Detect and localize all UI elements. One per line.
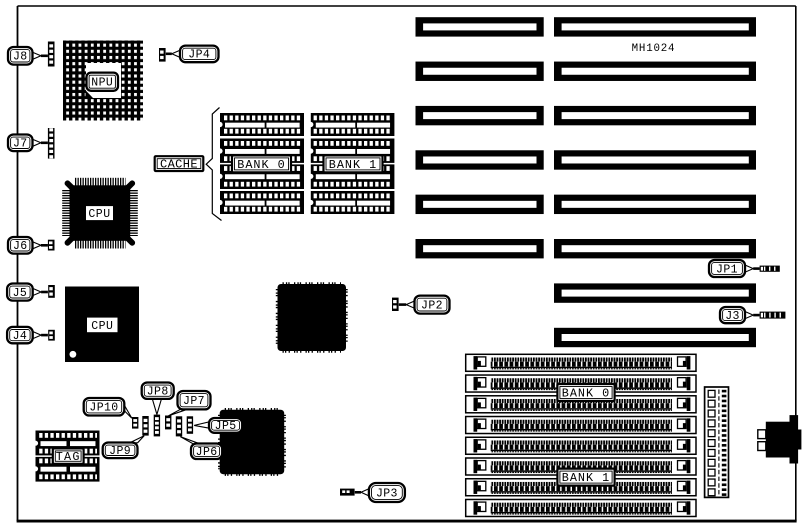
svg-text:NPU: NPU <box>91 77 113 90</box>
svg-text:BANK 0: BANK 0 <box>562 386 610 400</box>
svg-text:JP1: JP1 <box>716 263 738 276</box>
svg-text:BANK 0: BANK 0 <box>237 158 285 172</box>
svg-text:JP3: JP3 <box>376 487 398 500</box>
svg-text:CPU: CPU <box>91 320 113 333</box>
svg-text:JP4: JP4 <box>188 49 210 62</box>
svg-text:CPU: CPU <box>88 208 110 221</box>
svg-text:J6: J6 <box>13 240 28 253</box>
svg-text:JP6: JP6 <box>196 446 218 459</box>
svg-text:J3: J3 <box>725 310 740 323</box>
svg-text:JP2: JP2 <box>421 299 443 312</box>
svg-text:TAG: TAG <box>56 450 81 464</box>
svg-text:JP8: JP8 <box>147 386 169 399</box>
svg-text:JP7: JP7 <box>183 395 205 408</box>
svg-text:J5: J5 <box>13 287 28 300</box>
svg-text:BANK 1: BANK 1 <box>329 158 377 172</box>
svg-text:JP10: JP10 <box>89 402 118 415</box>
svg-text:J7: J7 <box>13 138 28 151</box>
svg-text:MH1024: MH1024 <box>632 43 676 55</box>
svg-text:J4: J4 <box>13 330 28 343</box>
svg-text:JP9: JP9 <box>109 445 131 458</box>
svg-text:JP5: JP5 <box>215 420 237 433</box>
svg-text:BANK 1: BANK 1 <box>562 471 610 485</box>
svg-text:CACHE: CACHE <box>160 158 198 172</box>
svg-text:J8: J8 <box>13 51 28 64</box>
